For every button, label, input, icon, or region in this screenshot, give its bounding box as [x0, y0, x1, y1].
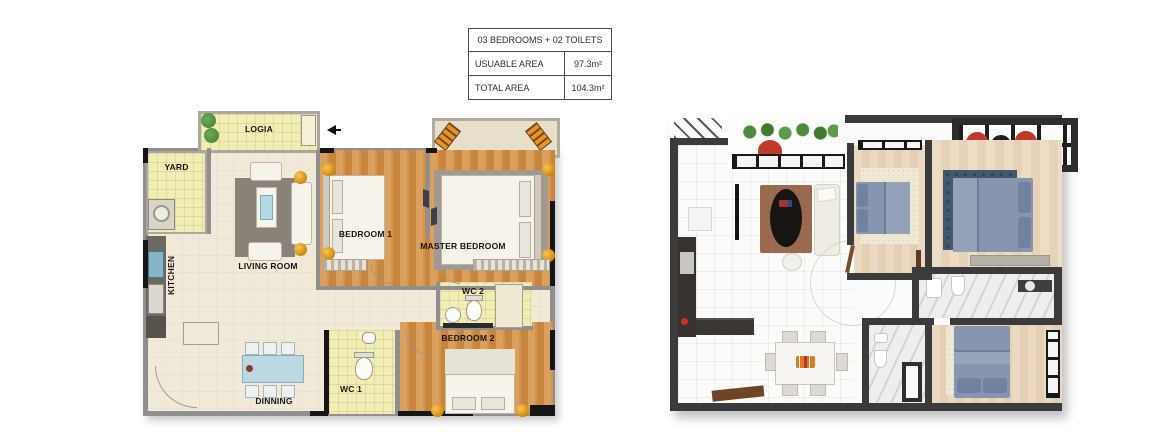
kitchen-label: KITCHEN: [167, 231, 183, 319]
total-area-label: TOTAL AREA: [469, 76, 565, 99]
kitchen-table: [183, 322, 219, 345]
lamp-icon: [294, 171, 307, 184]
kitchen-island-3d: [696, 318, 754, 335]
wall-3d: [847, 273, 932, 280]
logia-label: LOGIA: [198, 125, 320, 134]
floor-plan-2d: LOGIA YARD KITCHEN LIVING ROOM BEDROOM 1…: [143, 111, 563, 418]
glass-door-row: [732, 154, 845, 169]
bedroom1-window: [858, 140, 922, 150]
bed-blanket-3d: [953, 178, 979, 252]
bed-pillow: [481, 397, 505, 410]
cabinet-3d: [688, 207, 712, 231]
bed-pillow: [452, 397, 476, 410]
armchair-icon: [250, 162, 282, 181]
sink-3d: [1025, 281, 1035, 291]
info-table-title-row: 03 BEDROOMS + 02 TOILETS: [469, 29, 611, 51]
wall-3d: [912, 267, 919, 325]
wall-3d: [847, 143, 854, 245]
coffee-table-top: [260, 195, 273, 220]
total-area-value: 104.3m²: [565, 83, 611, 93]
sofa-pillow: [816, 187, 837, 203]
info-table: 03 BEDROOMS + 02 TOILETS USUABLE AREA 97…: [468, 28, 612, 100]
toilet-icon: [355, 357, 373, 380]
wall-3d: [925, 140, 932, 280]
doorway-gap: [934, 318, 950, 325]
plant-row-icon: [740, 121, 838, 143]
bed-pillow-3d: [957, 378, 981, 393]
washer-3d: [926, 278, 942, 298]
floor-plan-3d: [670, 112, 1080, 418]
toilet-3d: [874, 350, 887, 368]
dining-chair-3d: [836, 353, 848, 371]
shelf-dark: [443, 323, 493, 328]
wall-structural: [426, 148, 437, 153]
oval-coffee-table: [770, 189, 802, 247]
wall-structural: [143, 148, 148, 163]
kitchen-sink-icon: [148, 251, 164, 278]
floor-plan-page: 03 BEDROOMS + 02 TOILETS USUABLE AREA 97…: [0, 0, 1170, 438]
wall-3d: [925, 318, 932, 410]
window-hatch: [323, 259, 367, 271]
yard-label: YARD: [146, 163, 207, 172]
bedroom2-label: BEDROOM 2: [427, 334, 509, 343]
kitchen-cabinet: [146, 316, 166, 338]
toilet-3d: [951, 276, 965, 296]
wc1-label: WC 1: [329, 385, 373, 394]
armchair-icon: [248, 242, 282, 261]
bed-headboard: [534, 175, 541, 265]
wall-structural: [143, 240, 148, 288]
wall-structural: [530, 405, 555, 416]
bed-pillow: [332, 180, 343, 214]
bed-pillow-3d: [983, 378, 1007, 393]
dining-chair-3d: [782, 384, 798, 396]
lamp-icon: [516, 404, 529, 417]
brand-mark: [796, 356, 815, 368]
wall-3d: [862, 318, 1062, 325]
entrance-arrow-stub: [335, 129, 341, 131]
bed-pillow-3d: [857, 184, 868, 207]
vanity-3d: [1018, 280, 1052, 292]
bed-blanket: [445, 349, 515, 375]
bed-pillow: [519, 222, 531, 258]
sink-icon: [445, 307, 461, 323]
centerpiece-icon: [246, 365, 253, 372]
wall: [436, 282, 440, 330]
entrance-arrow-icon: [322, 125, 336, 135]
lamp-icon: [294, 243, 307, 256]
side-chair-3d: [782, 253, 802, 271]
kitchen-appliance-3d: [680, 252, 694, 274]
wall-structural: [324, 330, 329, 414]
tv-icon: [735, 184, 739, 240]
dining-chair-icon: [281, 342, 295, 355]
dinning-label: DINNING: [238, 397, 310, 406]
door-leaf-icon: [431, 207, 437, 226]
bed-pillow-3d: [857, 209, 868, 232]
dining-chair-3d: [810, 384, 826, 396]
bench-3d: [970, 255, 1050, 266]
sketch-hatch-marks: [674, 118, 722, 138]
living-room-label: LIVING ROOM: [213, 262, 323, 271]
bedroom2-window: [1046, 330, 1060, 398]
lamp-icon: [431, 404, 444, 417]
bed-pillow: [519, 181, 531, 217]
toilet-icon: [466, 300, 482, 321]
wall: [395, 330, 400, 414]
wall-3d: [915, 267, 1062, 274]
fruit-bowl-icon: [681, 318, 688, 325]
usable-area-row: USUABLE AREA 97.3m²: [469, 51, 611, 75]
bed-pillow-3d: [1018, 182, 1031, 213]
dining-chair-icon: [245, 342, 259, 355]
wc2-label: WC 2: [443, 287, 503, 296]
wall-structural: [310, 411, 328, 416]
wall: [670, 138, 730, 145]
sofa-icon: [291, 182, 312, 245]
dining-chair-icon: [263, 342, 277, 355]
bed-blanket-3d: [884, 182, 910, 234]
wall-structural: [550, 201, 555, 286]
door-leaf-icon: [423, 189, 429, 208]
bedroom1-label: BEDROOM 1: [318, 230, 413, 239]
sink-icon: [362, 332, 376, 344]
wall-structural: [320, 148, 334, 153]
lamp-icon: [322, 163, 335, 176]
wall: [207, 148, 211, 234]
total-area-row: TOTAL AREA 104.3m²: [469, 75, 611, 99]
window-hatch: [473, 259, 550, 271]
wall-3d: [862, 318, 869, 410]
shower-niche-3d: [902, 362, 922, 402]
sink-3d: [874, 333, 888, 343]
wall-structural: [550, 330, 555, 370]
usable-area-label: USUABLE AREA: [469, 52, 565, 75]
bed-pillow-3d: [1018, 217, 1031, 248]
plan-title: 03 BEDROOMS + 02 TOILETS: [478, 35, 603, 45]
yard-washer-drum: [153, 205, 170, 222]
bed-blanket-3d: [954, 350, 1010, 364]
kitchen-appliance-icon: [148, 284, 164, 314]
usable-area-value: 97.3m²: [565, 59, 611, 69]
toilet-tank: [354, 352, 374, 358]
book-icon: [779, 200, 792, 207]
master-bedroom-label: MASTER BEDROOM: [411, 242, 515, 251]
lamp-icon: [542, 163, 555, 176]
